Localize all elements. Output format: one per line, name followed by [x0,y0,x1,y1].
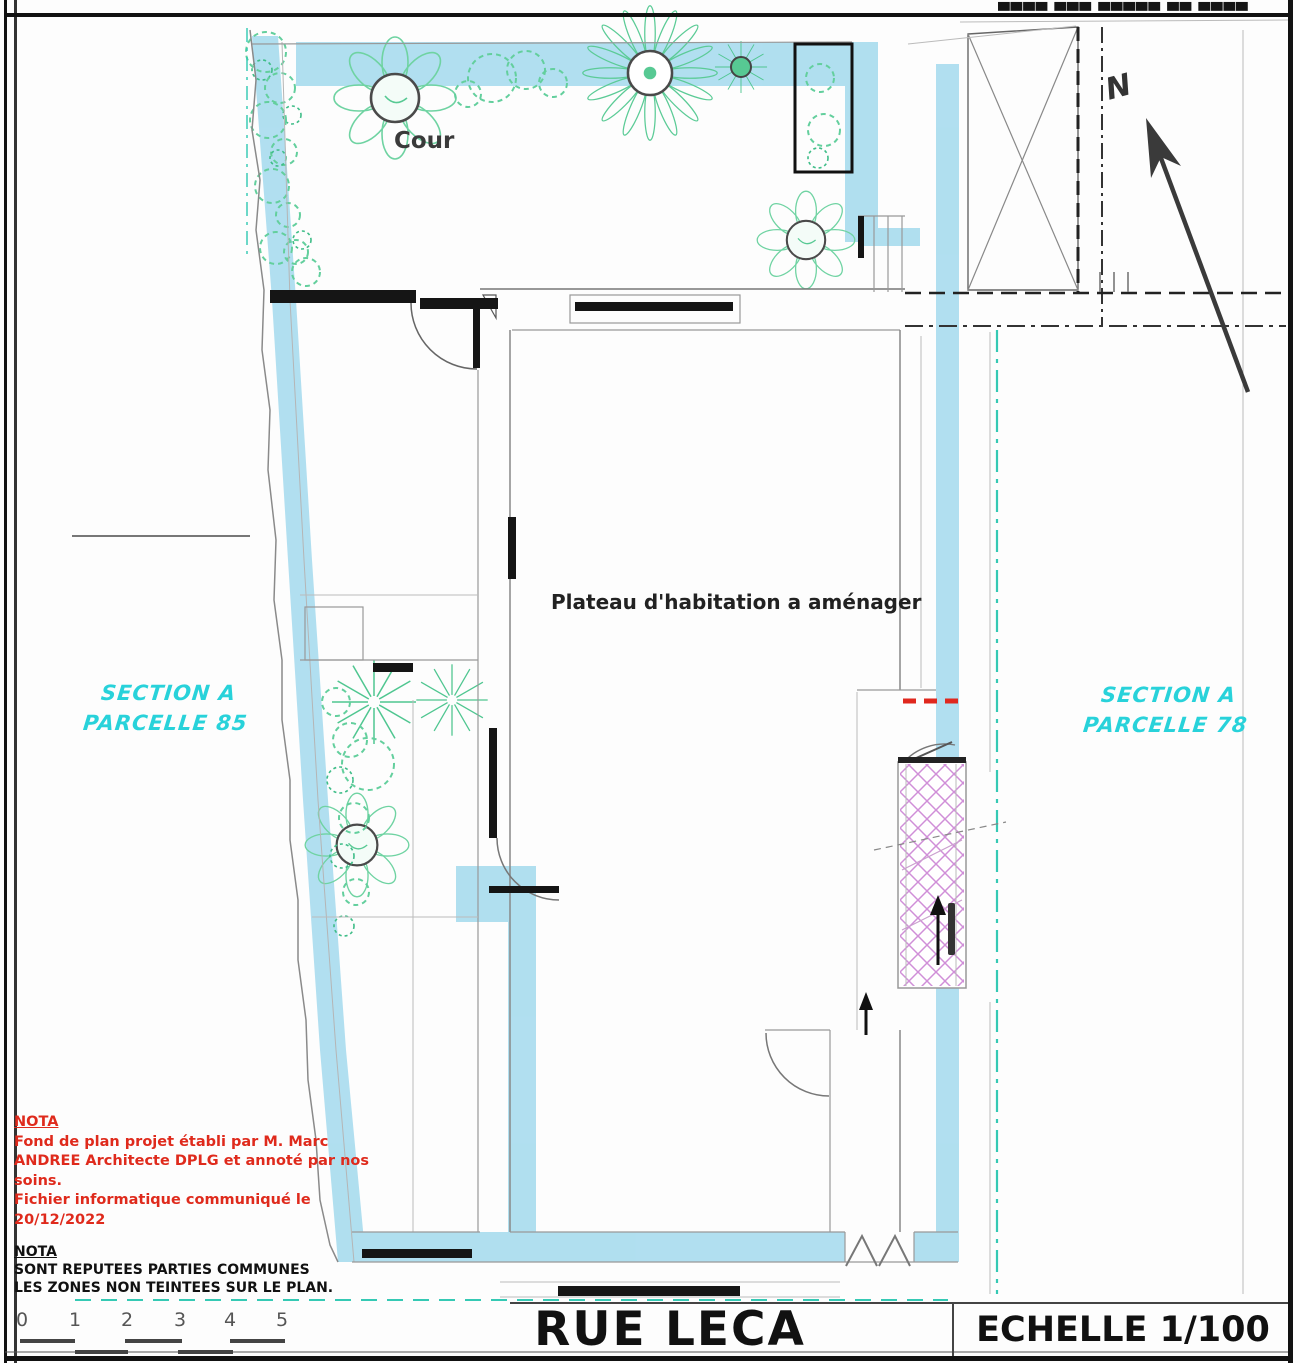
staircase [859,701,1006,1035]
clipped-header-text: ▄▄▄▄ ▄▄▄ ▄▄▄▄▄ ▄▄ ▄▄▄▄▄▄▄ [998,0,1248,13]
window-bar-top [575,302,733,311]
scale-tick: 4 [220,1309,240,1331]
parcel-label-78: SECTION A PARCELLE 78 [1069,680,1265,740]
site-plan-page: ▄▄▄▄ ▄▄▄ ▄▄▄▄▄ ▄▄ ▄▄▄▄▄▄▄ Cour Plateau d… [0,0,1300,1363]
scale-tick: 5 [272,1309,292,1331]
vegetation [246,6,855,936]
scale-title: ECHELLE 1/100 [958,1310,1288,1350]
street-name-title: RUE LECA [470,1302,870,1357]
north-arrow-icon [1146,118,1248,392]
red-nota-block: NOTA Fond de plan projet établi par M. M… [14,1113,369,1230]
scale-tick: 3 [170,1309,190,1331]
wall-highlights [252,36,959,1262]
parcel-label-85: SECTION A PARCELLE 85 [69,678,265,738]
scale-tick: 0 [12,1309,32,1331]
courtyard-label: Cour [394,128,454,154]
window-bar-bottom [558,1286,740,1296]
scale-tick: 2 [117,1309,137,1331]
parcel-boundaries [72,28,1243,1294]
adjacent-parcel-block [905,26,1286,326]
scale-tick: 1 [65,1309,85,1331]
main-area-label: Plateau d'habitation a aménager [551,590,921,614]
black-nota-block: NOTA SONT REPUTEES PARTIES COMMUNES LES … [14,1243,333,1297]
